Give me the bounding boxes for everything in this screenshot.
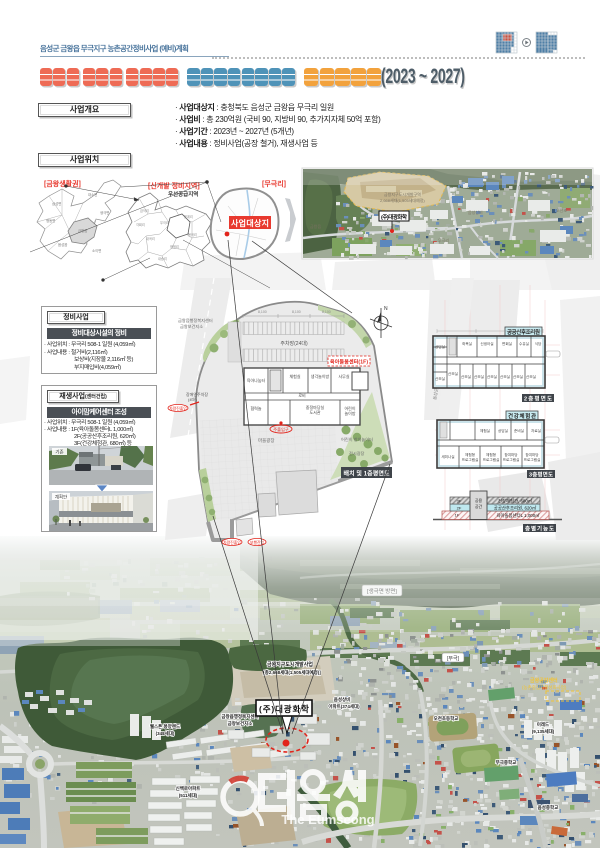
svg-text:프로그램실: 프로그램실 (503, 457, 520, 462)
svg-text:마을광장: 마을광장 (258, 437, 275, 444)
svg-text:건강체험관, 680㎡: 건강체험관, 680㎡ (498, 498, 533, 505)
svg-text:무극리: 무극리 (160, 220, 169, 225)
svg-text:산모실: 산모실 (487, 374, 497, 379)
svg-text:체험실: 체험실 (289, 373, 300, 379)
svg-text:육아나눔터: 육아나눔터 (247, 377, 266, 383)
svg-text:육아돌봄센터L 1,000㎡: 육아돌봄센터L 1,000㎡ (496, 512, 540, 519)
svg-text:[무극리]: [무극리] (262, 179, 286, 188)
svg-text:8,100: 8,100 (258, 310, 267, 314)
svg-text:프로그램실: 프로그램실 (462, 457, 479, 462)
svg-text:차량진출입: 차량진출입 (169, 406, 186, 411)
svg-text:(농촌중심지활성화사업): (농촌중심지활성화사업) (522, 684, 567, 691)
svg-text:배치 및 1층평면도: 배치 및 1층평면도 (344, 470, 390, 478)
svg-text:좌욕실: 좌욕실 (462, 341, 472, 346)
svg-text:신백로아파트: 신백로아파트 (176, 785, 201, 792)
svg-text:2층평면도: 2층평면도 (524, 395, 552, 403)
svg-text:[금왕생활권]: [금왕생활권] (44, 179, 81, 188)
svg-text:삼성면: 삼성면 (52, 201, 61, 206)
svg-text:(511세대): (511세대) (179, 792, 198, 799)
svg-text:[무극]: [무극] (447, 656, 460, 662)
svg-text:자료실: 자료실 (531, 428, 541, 433)
svg-text:식당: 식당 (535, 341, 542, 346)
svg-text:면회실: 면회실 (502, 341, 512, 346)
svg-text:산모실: 산모실 (461, 374, 471, 379)
svg-text:생각놀이방: 생각놀이방 (311, 373, 330, 379)
svg-text:음성상비: 음성상비 (468, 209, 483, 215)
svg-text:참여마당: 참여마당 (504, 452, 518, 457)
svg-text:1F: 1F (455, 513, 460, 518)
svg-text:(348세대): (348세대) (156, 730, 175, 737)
svg-text:금왕지구도시개발사업: 금왕지구도시개발사업 (267, 661, 313, 668)
svg-text:봉곡리: 봉곡리 (188, 232, 197, 237)
svg-text:신생아실: 신생아실 (480, 341, 493, 346)
svg-text:상담실: 상담실 (498, 428, 508, 433)
svg-text:음성상비: 음성상비 (334, 696, 351, 703)
svg-text:산모실: 산모실 (474, 374, 484, 379)
svg-text:금왕보건지소: 금왕보건지소 (228, 720, 253, 727)
svg-text:수유실: 수유실 (519, 341, 529, 346)
svg-text:(주)대광화학: (주)대광화학 (381, 213, 407, 221)
svg-text:준비실: 준비실 (514, 428, 524, 433)
svg-text:3F: 3F (457, 499, 462, 504)
svg-text:체험실: 체험실 (480, 428, 490, 433)
svg-text:금왕읍행정복지센터: 금왕읍행정복지센터 (178, 317, 213, 324)
svg-text:The Eumseong: The Eumseong (281, 812, 374, 827)
svg-text:(4대): (4대) (188, 396, 197, 402)
svg-text:산모실: 산모실 (448, 371, 458, 376)
svg-text:용계리: 용계리 (184, 214, 193, 219)
svg-text:각회리: 각회리 (136, 222, 145, 227)
svg-text:금왕읍: 금왕읍 (310, 223, 321, 229)
svg-text:무극리: 무극리 (438, 237, 449, 243)
svg-text:층별기능도: 층별기능도 (525, 525, 554, 533)
svg-text:공간: 공간 (475, 503, 483, 509)
svg-text:로비: 로비 (298, 392, 306, 398)
svg-text:오선초: 오선초 (556, 207, 567, 213)
svg-text:8,100: 8,100 (322, 310, 331, 314)
svg-text:공공산후조리원, 620㎡: 공공산후조리원, 620㎡ (494, 505, 537, 512)
svg-text:건강체험관: 건강체험관 (508, 412, 536, 420)
svg-text:산모실: 산모실 (526, 374, 536, 379)
svg-text:2,668세대(1,505세대예정): 2,668세대(1,505세대예정) (380, 197, 425, 203)
svg-text:주출입구: 주출입구 (273, 426, 289, 433)
svg-text:주차장(24대): 주차장(24대) (280, 340, 308, 347)
svg-text:체험형: 체험형 (465, 452, 475, 457)
svg-text:금왕읍행정복지센터: 금왕읍행정복지센터 (221, 713, 258, 720)
svg-text:세미나실: 세미나실 (441, 454, 454, 459)
svg-text:3층평면도: 3층평면도 (529, 471, 553, 479)
svg-text:8,100: 8,100 (292, 310, 301, 314)
svg-text:공용: 공용 (475, 498, 483, 503)
svg-text:소이면: 소이면 (92, 248, 101, 253)
svg-text:금왕보건지소: 금왕보건지소 (180, 323, 203, 330)
svg-text:맹동면: 맹동면 (46, 218, 55, 223)
svg-text:(9,135세대): (9,135세대) (532, 728, 555, 735)
svg-text:정생리: 정생리 (170, 244, 179, 249)
svg-text:체험형: 체험형 (486, 452, 496, 457)
svg-text:아파트(374세대): 아파트(374세대) (328, 703, 360, 710)
svg-text:협력놀: 협력놀 (250, 405, 261, 411)
svg-text:놀이방: 놀이방 (344, 410, 355, 416)
svg-text:대소면: 대소면 (88, 192, 97, 197)
svg-text:금왕공감센터: 금왕공감센터 (530, 677, 558, 684)
svg-text:참여마당: 참여마당 (525, 452, 539, 457)
svg-text:사업대상지: 사업대상지 (231, 218, 269, 228)
svg-text:상담실: 상담실 (435, 344, 445, 349)
svg-text:내송리: 내송리 (158, 256, 167, 261)
svg-text:2F: 2F (457, 506, 462, 511)
svg-text:금석리: 금석리 (140, 208, 149, 213)
svg-text:(주)대광화학: (주)대광화학 (259, 704, 309, 714)
svg-text:어린이 창의놀이터: 어린이 창의놀이터 (341, 436, 373, 443)
svg-text:프로그램실: 프로그램실 (524, 457, 541, 462)
svg-text:보행진입: 보행진입 (250, 540, 264, 545)
svg-text:도서관: 도서관 (309, 409, 320, 415)
svg-text:웰스튼 봉양랜드: 웰스튼 봉양랜드 (150, 723, 180, 730)
svg-text:산모실: 산모실 (500, 374, 510, 379)
svg-text:산모실: 산모실 (513, 374, 523, 379)
svg-text:육아돌봄센터(1F): 육아돌봄센터(1F) (330, 359, 368, 366)
svg-text:음성중학교: 음성중학교 (538, 804, 559, 811)
svg-text:무극중학교: 무극중학교 (496, 759, 517, 766)
svg-text:산모실: 산모실 (435, 376, 445, 381)
svg-text:내곡리: 내곡리 (146, 236, 155, 241)
svg-text:[총2,668세대(1,505세대예정)]: [총2,668세대(1,505세대예정)] (263, 669, 321, 676)
svg-text:N: N (384, 306, 388, 312)
svg-text:금왕지구도시개발구역: 금왕지구도시개발구역 (384, 191, 421, 197)
svg-text:이레드: 이레드 (537, 721, 549, 728)
svg-text:사무실: 사무실 (338, 373, 349, 379)
svg-text:생극면: 생극면 (100, 210, 109, 215)
svg-text:차량진출입: 차량진출입 (223, 540, 240, 545)
svg-text:오천초등학교: 오천초등학교 (434, 715, 459, 722)
svg-text:음성읍: 음성읍 (58, 242, 67, 247)
svg-text:프로그램실: 프로그램실 (483, 457, 500, 462)
svg-text:[신개발 정비지역]: [신개발 정비지역] (148, 181, 200, 190)
svg-text:전시광장: 전시광장 (349, 450, 365, 456)
